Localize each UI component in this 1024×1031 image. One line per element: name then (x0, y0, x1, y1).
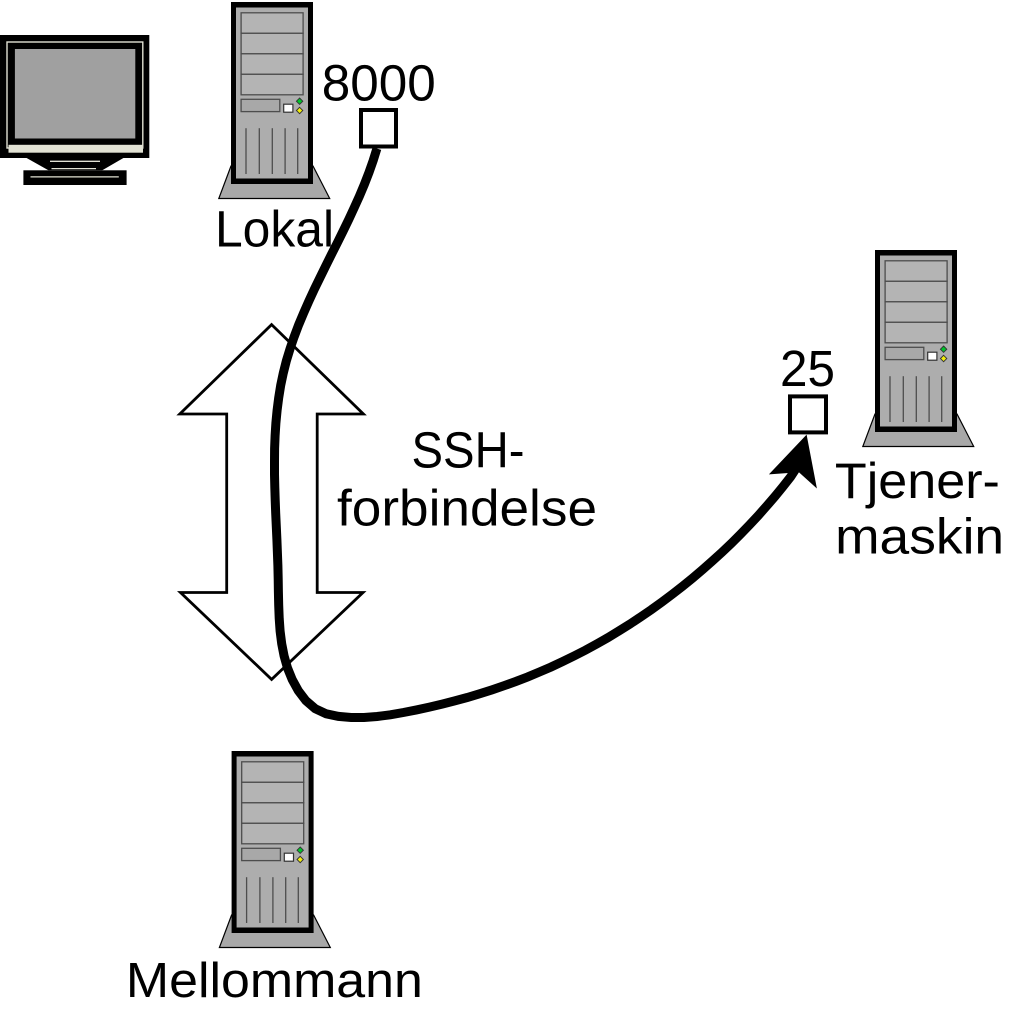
svg-text:maskin: maskin (835, 509, 1004, 565)
svg-text:forbindelse: forbindelse (337, 479, 597, 536)
svg-text:SSH-: SSH- (412, 422, 525, 479)
svg-text:8000: 8000 (322, 55, 436, 112)
svg-text:Lokal: Lokal (215, 201, 334, 258)
svg-text:25: 25 (780, 340, 835, 397)
svg-text:Tjener-: Tjener- (835, 453, 1000, 509)
svg-text:Mellommann: Mellommann (126, 953, 423, 1008)
